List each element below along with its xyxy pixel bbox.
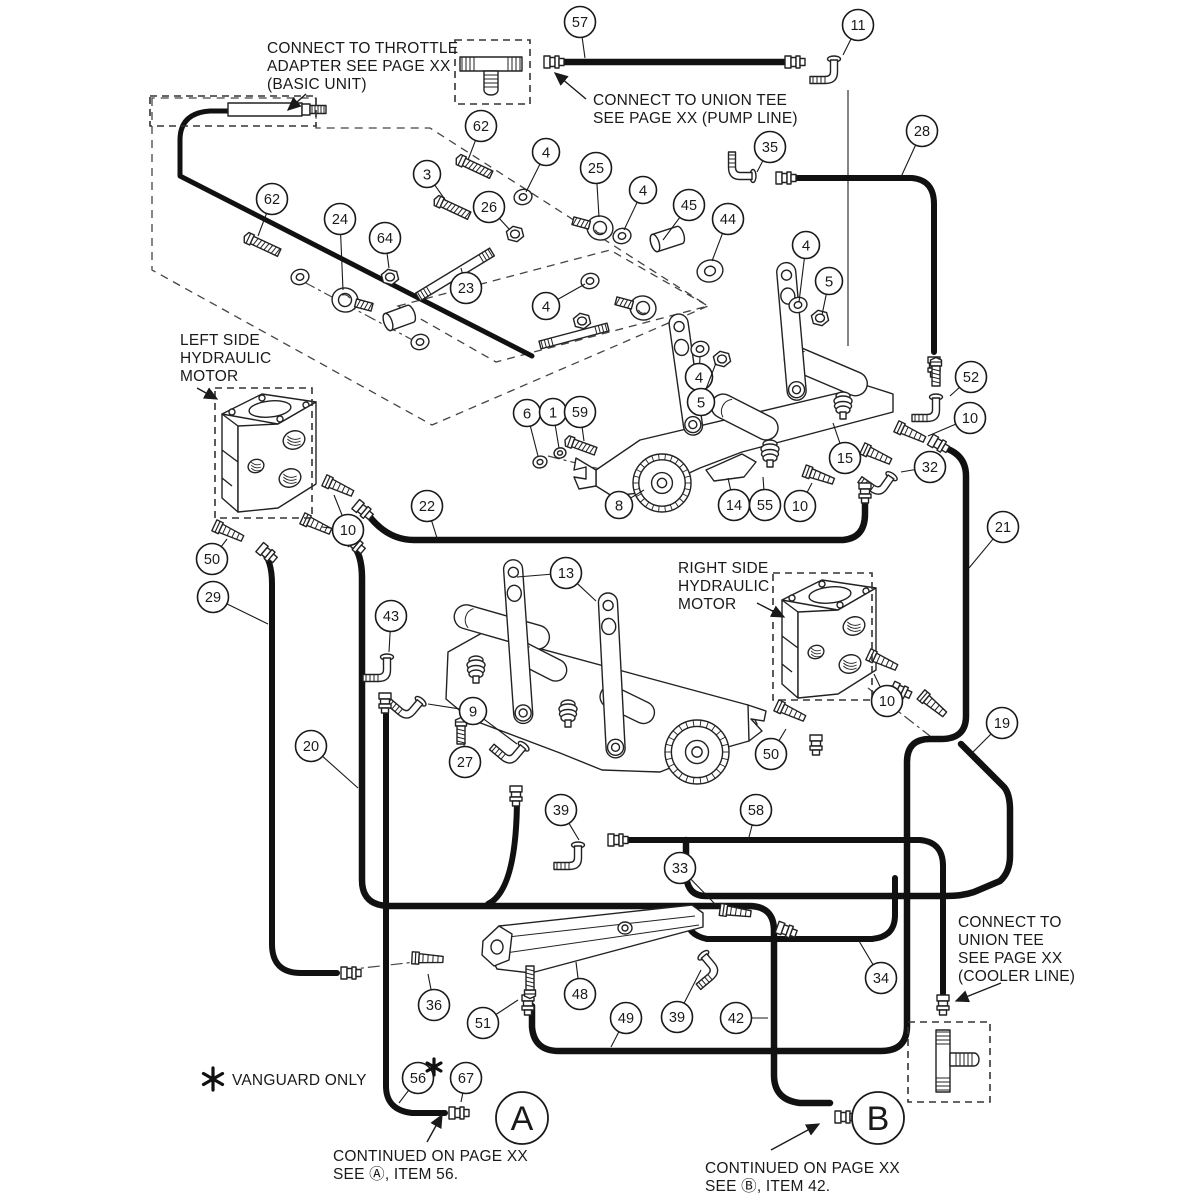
bolt-part bbox=[242, 231, 282, 257]
svg-text:39: 39 bbox=[669, 1010, 685, 1026]
washer-part bbox=[409, 332, 430, 351]
annotation-left-motor-label: LEFT SIDEHYDRAULICMOTOR bbox=[180, 332, 271, 399]
pump-body bbox=[574, 458, 596, 489]
callout-21: 21 bbox=[969, 512, 1019, 569]
union-fitting bbox=[785, 56, 805, 68]
callout-36: 36 bbox=[419, 974, 450, 1021]
hose-19 bbox=[686, 744, 1010, 896]
svg-text:29: 29 bbox=[205, 590, 221, 606]
callout-6: 6 bbox=[514, 400, 541, 457]
union-fitting bbox=[510, 786, 522, 806]
svg-text:11: 11 bbox=[850, 18, 865, 34]
svg-text:6: 6 bbox=[523, 405, 531, 422]
callout-3: 3 bbox=[414, 161, 447, 202]
hose-29 bbox=[262, 551, 337, 973]
svg-text:36: 36 bbox=[426, 998, 442, 1014]
callout-33: 33 bbox=[665, 853, 717, 906]
callout-26: 26 bbox=[474, 192, 510, 230]
callout-34: 34 bbox=[859, 941, 897, 994]
section-marker-B: B bbox=[852, 1092, 904, 1144]
washer-part bbox=[695, 257, 726, 284]
elbow-fitting bbox=[363, 654, 394, 682]
throttle-cable-housing bbox=[228, 103, 326, 116]
callout-22: 22 bbox=[412, 491, 443, 539]
svg-text:10: 10 bbox=[879, 694, 895, 710]
hose-28 bbox=[788, 178, 934, 352]
barb-fitting bbox=[300, 513, 333, 537]
svg-text:4: 4 bbox=[802, 237, 810, 254]
union-fitting bbox=[544, 56, 564, 68]
callout-55: 55 bbox=[750, 477, 781, 521]
callout-59: 59 bbox=[565, 397, 596, 442]
callout-14: 14 bbox=[719, 478, 750, 521]
callout-4: 4 bbox=[624, 177, 657, 231]
bolt-part bbox=[931, 358, 942, 387]
svg-text:CONTINUED ON PAGE XXSEE Ⓐ, IT: CONTINUED ON PAGE XXSEE Ⓐ, ITEM 56. bbox=[333, 1148, 528, 1183]
svg-text:42: 42 bbox=[728, 1011, 744, 1027]
elbow-fitting bbox=[683, 949, 724, 990]
union-fitting bbox=[776, 172, 796, 184]
union-fitting bbox=[859, 483, 871, 503]
control-lever bbox=[776, 262, 807, 401]
svg-text:5: 5 bbox=[697, 394, 705, 411]
callout-62: 62 bbox=[466, 111, 497, 161]
union-fitting bbox=[810, 735, 822, 755]
callout-42: 42 bbox=[721, 1003, 769, 1034]
union-fitting bbox=[449, 1107, 469, 1119]
svg-text:1: 1 bbox=[549, 404, 557, 421]
svg-text:14: 14 bbox=[726, 498, 742, 514]
svg-text:28: 28 bbox=[914, 124, 930, 140]
bolt-part bbox=[432, 194, 472, 220]
svg-text:57: 57 bbox=[572, 15, 588, 31]
union-fitting bbox=[937, 995, 949, 1015]
oil-cooler-body bbox=[482, 905, 703, 973]
callout-19: 19 bbox=[973, 708, 1018, 753]
callout-52: 52 bbox=[950, 362, 987, 397]
svg-text:62: 62 bbox=[473, 119, 489, 135]
svg-text:58: 58 bbox=[748, 803, 764, 819]
elbow-fitting bbox=[810, 56, 841, 84]
svg-text:27: 27 bbox=[457, 755, 473, 771]
svg-text:20: 20 bbox=[303, 739, 319, 755]
barb-fitting bbox=[894, 421, 927, 445]
callout-20: 20 bbox=[296, 731, 359, 789]
elbow-fitting bbox=[387, 684, 428, 725]
svg-text:10: 10 bbox=[962, 411, 978, 427]
elbow-fitting bbox=[912, 394, 943, 422]
spacer-part bbox=[381, 304, 417, 332]
elbow-fitting bbox=[554, 842, 585, 870]
washer-part bbox=[611, 226, 632, 245]
svg-text:4: 4 bbox=[542, 144, 550, 161]
svg-text:4: 4 bbox=[542, 298, 550, 315]
washer-part bbox=[532, 455, 548, 470]
diagram-root: 5711286242534454435622464262344545615981… bbox=[0, 0, 1200, 1200]
svg-text:26: 26 bbox=[481, 200, 497, 216]
ball-stud bbox=[761, 440, 779, 467]
section-marker-A: A bbox=[496, 1092, 548, 1144]
union-fitting bbox=[256, 542, 279, 564]
svg-text:32: 32 bbox=[922, 460, 938, 476]
callout-4: 4 bbox=[526, 139, 560, 193]
callout-57: 57 bbox=[565, 7, 596, 59]
nut-part bbox=[573, 313, 590, 328]
svg-text:A: A bbox=[511, 1100, 534, 1138]
svg-text:55: 55 bbox=[757, 498, 773, 514]
annotation-cooler-line-note: CONNECT TOUNION TEESEE PAGE XX(COOLER LI… bbox=[956, 914, 1075, 1001]
svg-text:10: 10 bbox=[792, 499, 808, 515]
callout-11: 11 bbox=[843, 10, 874, 56]
svg-text:13: 13 bbox=[558, 566, 574, 582]
callout-1: 1 bbox=[540, 399, 567, 449]
svg-text:RIGHT SIDEHYDRAULICMOTOR: RIGHT SIDEHYDRAULICMOTOR bbox=[678, 560, 769, 613]
throttle-cable bbox=[180, 111, 532, 356]
elbow-fitting bbox=[729, 152, 757, 183]
callout-48: 48 bbox=[565, 962, 596, 1010]
motor-manifold-block bbox=[222, 394, 316, 512]
bolt-part bbox=[454, 153, 494, 179]
union-fitting bbox=[341, 967, 361, 979]
pulley-wheel bbox=[633, 454, 691, 512]
barb-fitting bbox=[412, 952, 444, 966]
union-tee-fitting bbox=[460, 57, 522, 95]
barb-fitting bbox=[212, 520, 245, 544]
svg-text:33: 33 bbox=[672, 861, 688, 877]
callout-15: 15 bbox=[830, 423, 861, 474]
callout-64: 64 bbox=[370, 223, 401, 269]
svg-text:LEFT SIDEHYDRAULICMOTOR: LEFT SIDEHYDRAULICMOTOR bbox=[180, 332, 271, 385]
callout-35: 35 bbox=[755, 132, 786, 173]
annotation-right-motor-label: RIGHT SIDEHYDRAULICMOTOR bbox=[678, 560, 784, 617]
svg-text:50: 50 bbox=[763, 747, 779, 763]
union-fitting bbox=[379, 693, 391, 713]
rod-end bbox=[613, 289, 659, 323]
svg-text:49: 49 bbox=[618, 1011, 634, 1027]
rod-end bbox=[329, 285, 375, 319]
svg-text:50: 50 bbox=[204, 552, 220, 568]
svg-text:22: 22 bbox=[419, 499, 435, 515]
annotation-throttle-note: CONNECT TO THROTTLEADAPTER SEE PAGE XX(B… bbox=[267, 40, 458, 110]
svg-text:10: 10 bbox=[340, 523, 356, 539]
nut-part bbox=[811, 310, 828, 325]
callout-10: 10 bbox=[785, 483, 816, 522]
callout-50: 50 bbox=[197, 539, 228, 575]
svg-text:9: 9 bbox=[469, 703, 477, 720]
callout-4: 4 bbox=[533, 284, 586, 320]
svg-text:34: 34 bbox=[873, 971, 889, 987]
barb-fitting bbox=[322, 475, 355, 499]
hydraulic-diagram: 5711286242534454435622464262344545615981… bbox=[0, 0, 1200, 1200]
svg-text:VANGUARD ONLY: VANGUARD ONLY bbox=[232, 1072, 367, 1089]
callout-25: 25 bbox=[581, 153, 612, 218]
callout-5: 5 bbox=[816, 268, 843, 316]
callout-67: 67 bbox=[451, 1063, 482, 1103]
svg-text:45: 45 bbox=[681, 198, 697, 214]
spacer-part bbox=[648, 225, 686, 253]
svg-text:43: 43 bbox=[383, 609, 399, 625]
svg-text:CONNECT TOUNION TEESEE PAGE XX: CONNECT TOUNION TEESEE PAGE XX(COOLER LI… bbox=[958, 914, 1075, 985]
svg-text:52: 52 bbox=[963, 370, 979, 386]
svg-text:48: 48 bbox=[572, 987, 588, 1003]
callout-28: 28 bbox=[901, 116, 938, 178]
barb-fitting bbox=[860, 443, 893, 467]
svg-text:39: 39 bbox=[553, 803, 569, 819]
svg-text:56: 56 bbox=[410, 1071, 426, 1087]
svg-text:35: 35 bbox=[762, 140, 778, 156]
svg-text:59: 59 bbox=[572, 405, 588, 421]
svg-text:23: 23 bbox=[458, 281, 474, 297]
motor-manifold-block bbox=[782, 580, 876, 698]
svg-text:51: 51 bbox=[475, 1016, 491, 1032]
callout-32: 32 bbox=[901, 452, 946, 483]
barb-fitting bbox=[774, 700, 807, 724]
washer-part bbox=[579, 271, 600, 290]
hose-jumper bbox=[488, 796, 517, 904]
callout-24: 24 bbox=[325, 204, 356, 291]
callout-43: 43 bbox=[376, 601, 407, 653]
barb-fitting bbox=[802, 465, 835, 487]
callout-13: 13 bbox=[517, 558, 596, 602]
bolt-part bbox=[525, 966, 536, 999]
callout-50: 50 bbox=[756, 729, 787, 770]
svg-text:44: 44 bbox=[720, 212, 736, 228]
union-fitting bbox=[608, 834, 628, 846]
svg-text:CONNECT TO UNION TEESEE PAGE X: CONNECT TO UNION TEESEE PAGE XX (PUMP LI… bbox=[593, 92, 798, 127]
svg-text:67: 67 bbox=[458, 1071, 474, 1087]
rod-end bbox=[570, 209, 616, 243]
svg-text:15: 15 bbox=[837, 451, 853, 467]
svg-text:24: 24 bbox=[332, 212, 348, 228]
annotation-pump-line-note: CONNECT TO UNION TEESEE PAGE XX (PUMP LI… bbox=[555, 73, 798, 127]
svg-text:25: 25 bbox=[588, 161, 604, 177]
svg-text:8: 8 bbox=[615, 497, 623, 514]
callout-29: 29 bbox=[198, 582, 269, 625]
svg-text:5: 5 bbox=[825, 273, 833, 290]
callout-39: 39 bbox=[662, 970, 702, 1033]
svg-text:4: 4 bbox=[639, 182, 647, 199]
svg-text:3: 3 bbox=[423, 166, 431, 183]
svg-text:CONNECT TO THROTTLEADAPTER SEE: CONNECT TO THROTTLEADAPTER SEE PAGE XX(B… bbox=[267, 40, 458, 93]
callout-10: 10 bbox=[872, 674, 903, 717]
nut-part bbox=[381, 269, 398, 284]
union-tee-fitting bbox=[936, 1030, 979, 1092]
annotation-vanguard-note: VANGUARD ONLY bbox=[203, 1068, 366, 1090]
svg-text:CONTINUED ON PAGE XXSEE Ⓑ, IT: CONTINUED ON PAGE XXSEE Ⓑ, ITEM 42. bbox=[705, 1160, 900, 1195]
callout-49: 49 bbox=[611, 1003, 642, 1048]
callout-51: 51 bbox=[468, 1000, 519, 1039]
callout-58: 58 bbox=[741, 795, 772, 842]
callout-27: 27 bbox=[450, 744, 481, 778]
svg-text:B: B bbox=[867, 1100, 890, 1138]
svg-text:64: 64 bbox=[377, 231, 393, 247]
svg-text:21: 21 bbox=[995, 520, 1011, 536]
callout-44: 44 bbox=[712, 204, 744, 262]
svg-text:62: 62 bbox=[264, 192, 280, 208]
barb-fitting bbox=[917, 690, 948, 719]
bolt-part bbox=[563, 435, 597, 456]
pulley-wheel bbox=[665, 720, 729, 784]
washer-part bbox=[512, 187, 533, 206]
svg-text:4: 4 bbox=[695, 369, 703, 386]
tie-rod bbox=[539, 323, 609, 349]
svg-text:19: 19 bbox=[994, 716, 1010, 732]
callout-39: 39 bbox=[546, 795, 580, 841]
